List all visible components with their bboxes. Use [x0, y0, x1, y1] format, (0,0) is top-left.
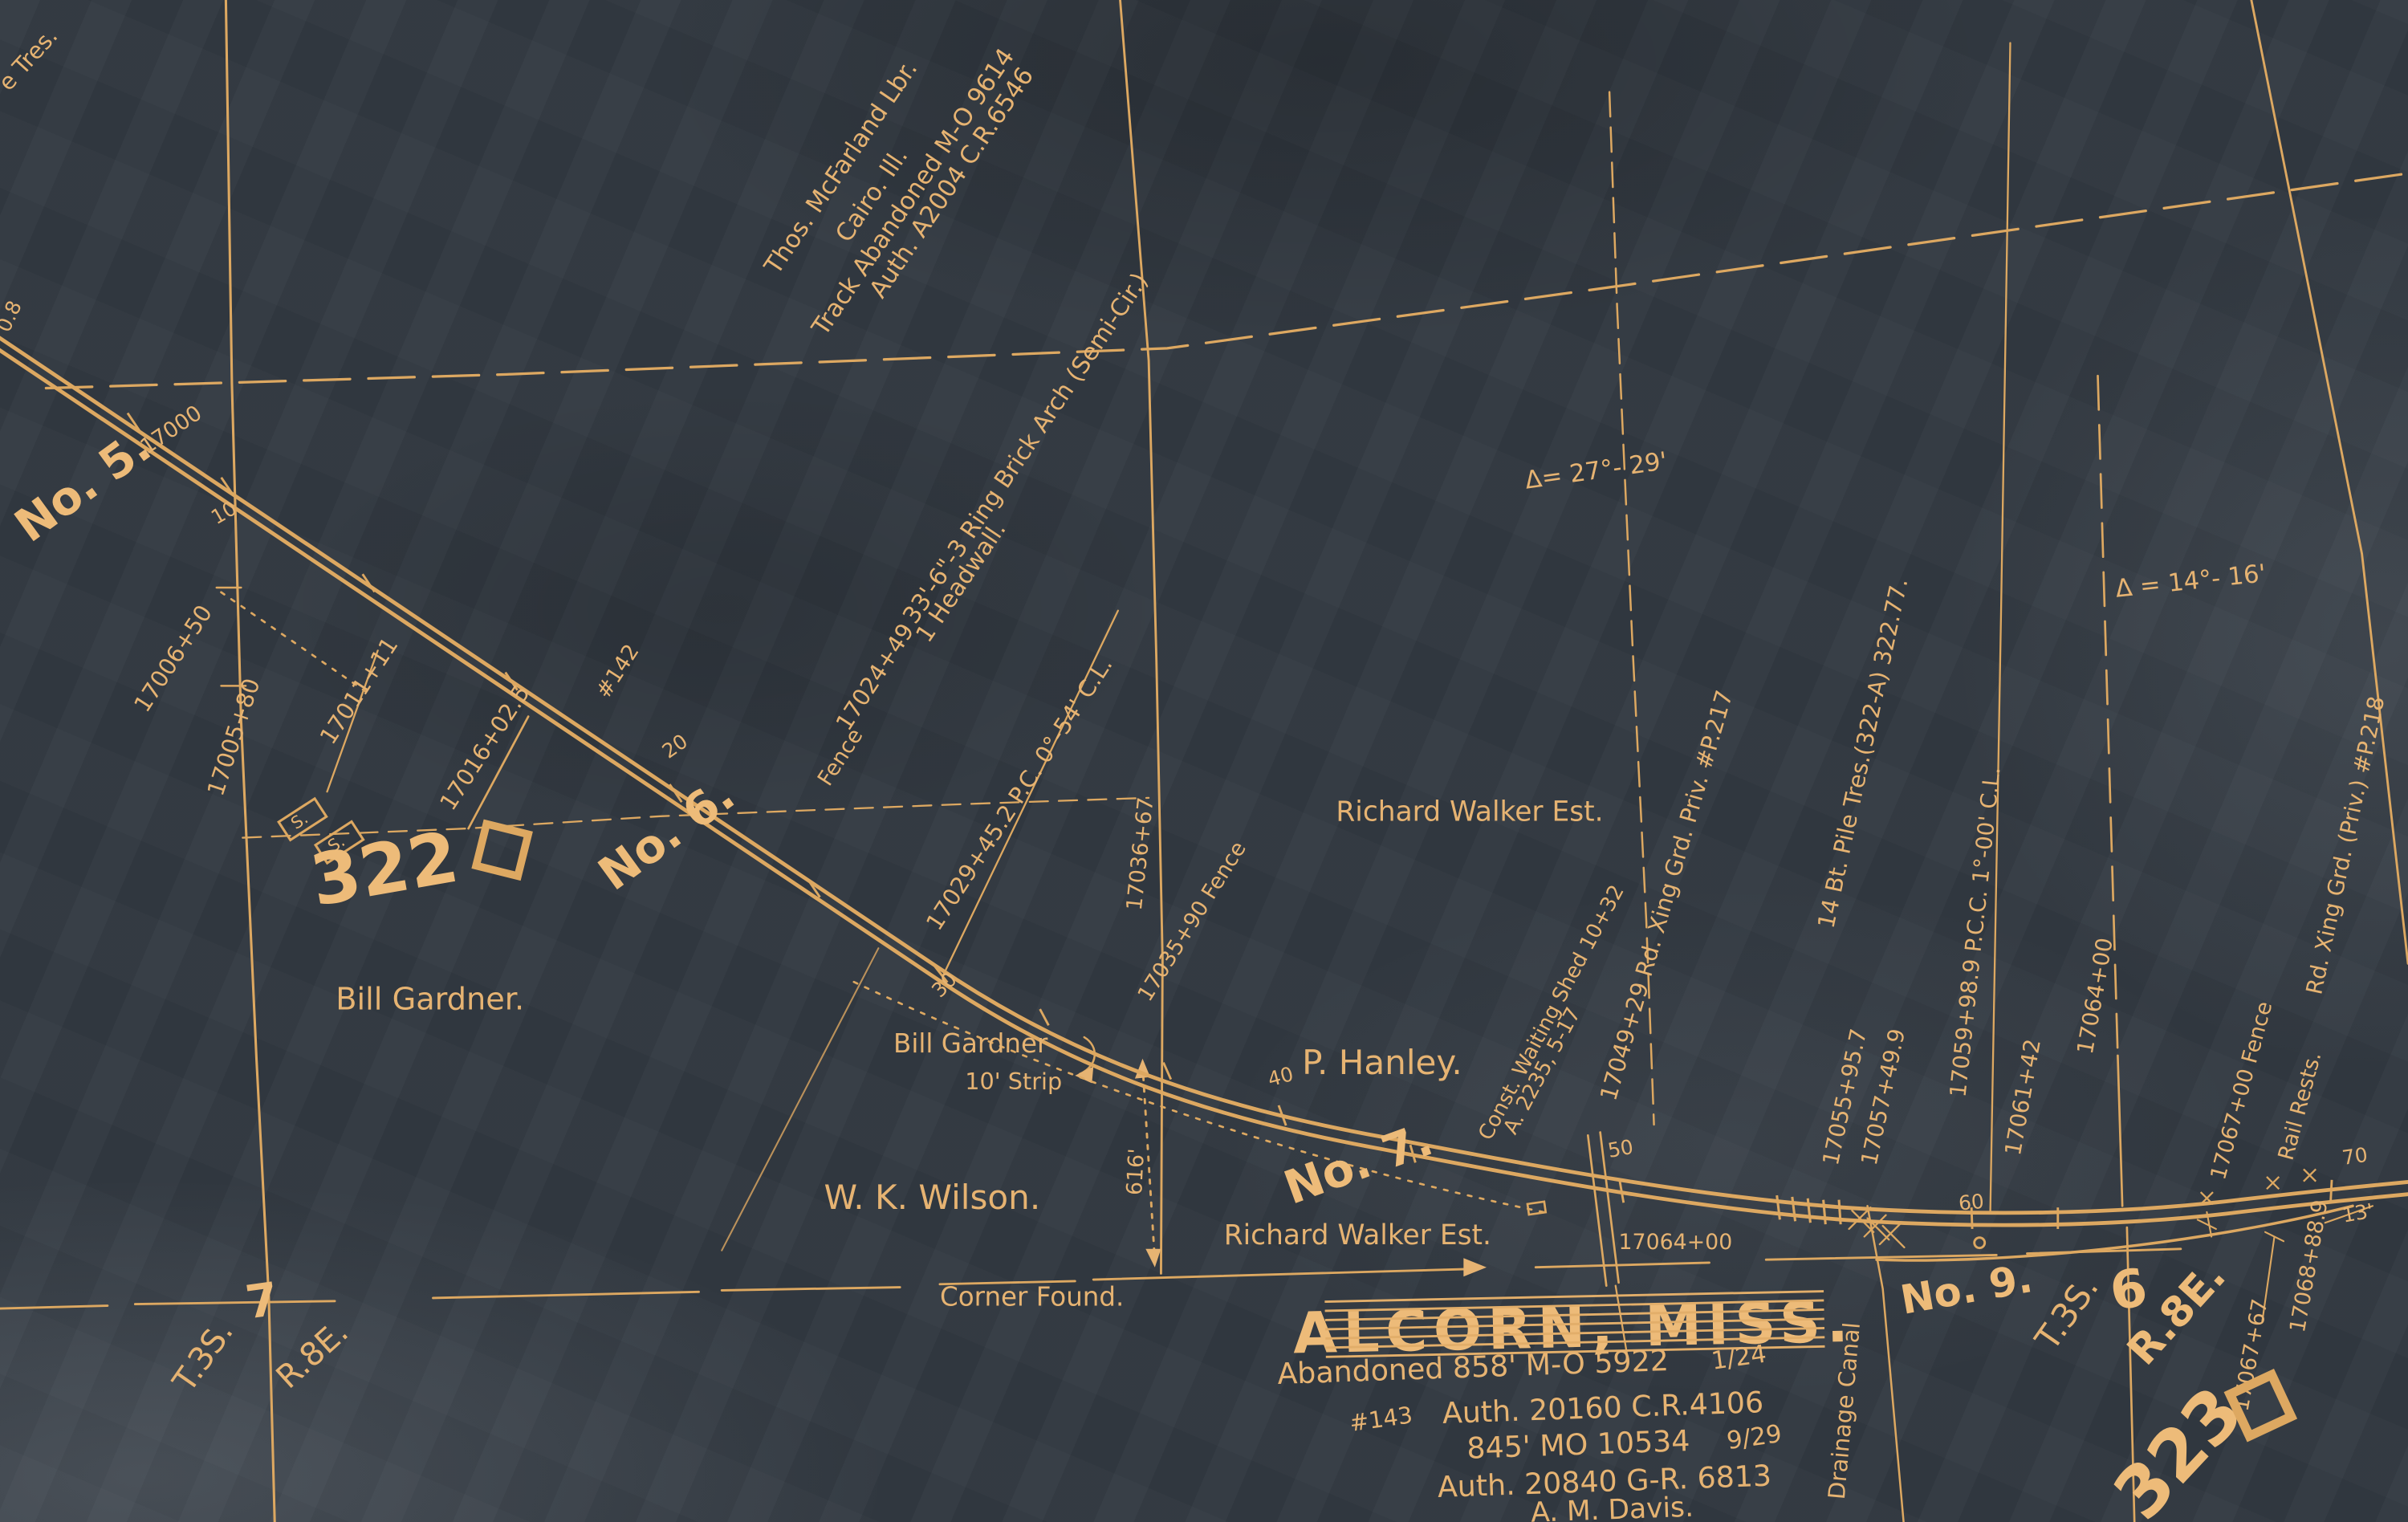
corner-found-label: Corner Found. [940, 1282, 1124, 1312]
road-xing-218-line [2250, 0, 2408, 963]
section-line-center [1120, 0, 1163, 1273]
note-142: #142 [592, 640, 645, 702]
engineer-name: A. M. Davis. [1530, 1491, 1694, 1522]
note-pile-trestle: 14 Bt. Pile Tres.(322-A) 322.77. [1812, 576, 1914, 930]
abandoned-note-2: 845' MO 10534 [1466, 1423, 1690, 1466]
note-delta-27: Δ= 27°- 29' [1523, 447, 1670, 494]
arch-note-line1: 33'-6"-3 Ring Brick Arch (Semi-Cir.) [897, 267, 1153, 629]
owner-strip: 10' Strip [965, 1068, 1062, 1095]
note-616: 616' [1122, 1148, 1149, 1196]
note-pcc: 17059+98.9 P.C.C. 1°-00' C.L. [1945, 766, 2006, 1099]
pcc-tangent-line [1991, 43, 2011, 1212]
title-block: ALCORN, MISS. Abandoned 858' M-O 5922 1/… [1277, 1288, 1855, 1522]
note-17005-80: 17005+80 [201, 675, 265, 800]
note-13ft: 13' [2341, 1199, 2375, 1227]
note-17064-horizontal: 17064+00 [1619, 1230, 1733, 1255]
note-rail-rests: Rail Rests. [2274, 1049, 2327, 1163]
station-40: 40 [1265, 1062, 1296, 1091]
railroad: S. S. [0, 330, 2408, 1260]
switch-symbol [1975, 1238, 1985, 1248]
station-60: 60 [1958, 1190, 1985, 1215]
note-waiting-shed-1: Const. Waiting Shed 10+32 [1474, 881, 1629, 1145]
note-fence-word: Fence [813, 724, 868, 791]
map-canvas: S. S. e Tres. 0.8 Thos. McFarland Lbr. C… [0, 0, 2408, 1522]
note-17067-fence: 17067+00 Fence [2206, 999, 2277, 1182]
track-no7-label: No. 7. [1277, 1112, 1439, 1215]
note-17016-02: 17016+02.5 [434, 680, 535, 816]
canal-crossing-hatch [1849, 1207, 1905, 1247]
note-rd-xing-218: Rd. Xing Grd. (Priv.) #P.218 [2300, 694, 2390, 996]
drainage-canal-line [1868, 1206, 1905, 1522]
fragment-tres-label: e Tres. [0, 22, 63, 96]
section-line-west-ticks [217, 588, 246, 686]
t3s-left-label: T.3S. [165, 1314, 241, 1399]
r8e-left-label: R.8E. [270, 1313, 356, 1396]
section-7-label: 7 [242, 1272, 282, 1330]
section-322-label: 322 [304, 816, 464, 922]
main-track-north-rail [0, 330, 2408, 1213]
abandoned-date-2: 9/29 [1725, 1420, 1784, 1455]
section-322-square [476, 824, 528, 876]
fragment-08-label: 0.8 [0, 297, 26, 336]
station-ticks [128, 413, 2332, 1229]
note-delta-14: Δ = 14°- 16' [2114, 560, 2268, 603]
owner-walker-1: Richard Walker Est. [1336, 796, 1603, 828]
note-17068: 17068+88.9 [2285, 1198, 2333, 1334]
owner-gardner-1: Bill Gardner. [336, 983, 524, 1018]
note-17064-vertical: 17064+00 [2072, 936, 2118, 1056]
note-143: #143 [1348, 1401, 1414, 1437]
station-50: 50 [1606, 1135, 1635, 1162]
note-17061: 17061+42 [1999, 1037, 2046, 1158]
note-pc: 17029+45.2 P.C. 0°-54' C.L. [921, 652, 1118, 935]
note-17024-49: 17024+49 [830, 618, 919, 735]
t3s-right-label: T.3S. [2027, 1268, 2106, 1358]
labels: e Tres. 0.8 Thos. McFarland Lbr. Cairo. … [0, 22, 2390, 1522]
note-17011-11: 17011+11 [314, 633, 403, 750]
section-lines [0, 0, 2408, 1522]
owner-walker-2: Richard Walker Est. [1224, 1219, 1491, 1251]
owner-wilson: W. K. Wilson. [824, 1178, 1041, 1217]
station-70: 70 [2341, 1143, 2369, 1170]
owner-hanley: P. Hanley. [1302, 1043, 1462, 1082]
station-30: 30 [927, 967, 962, 1002]
station-17000: 17000 [136, 401, 206, 459]
section-line-north-dashed [46, 173, 2408, 389]
section-line-arrowhead [1463, 1258, 1487, 1276]
authority-note-1: Auth. 20160 C.R.4106 [1442, 1385, 1764, 1430]
strip-arrowhead [1075, 1066, 1093, 1083]
note-17006-50: 17006+50 [128, 600, 218, 717]
track-no9-label: No. 9. [1897, 1255, 2036, 1324]
railroad-valuation-map-photo: S. S. e Tres. 0.8 Thos. McFarland Lbr. C… [0, 0, 2408, 1522]
owner-gardner-2: Bill Gardner [893, 1028, 1048, 1059]
note-17036-67: 17036+67 [1122, 796, 1159, 912]
station-20: 20 [658, 730, 693, 763]
